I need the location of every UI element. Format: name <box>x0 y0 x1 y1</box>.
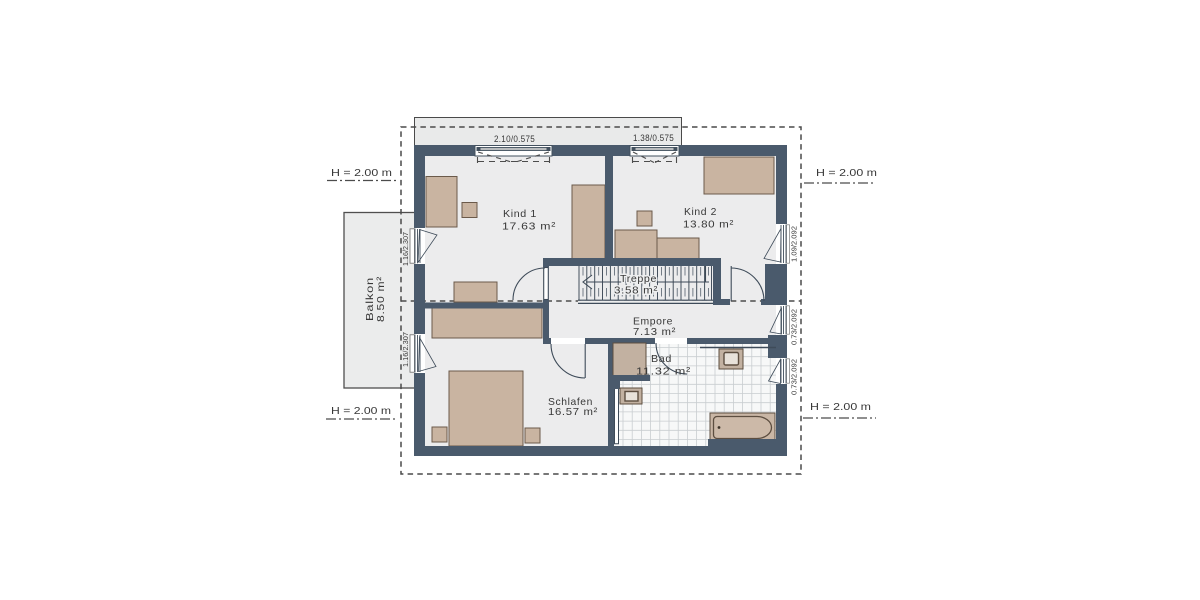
svg-text:H = 2.00 m: H = 2.00 m <box>810 402 871 413</box>
svg-text:H = 2.00 m: H = 2.00 m <box>816 168 877 179</box>
svg-text:1.38/0.575: 1.38/0.575 <box>633 133 674 143</box>
svg-text:1.09/2.092: 1.09/2.092 <box>790 226 799 262</box>
svg-text:17.63 m²: 17.63 m² <box>502 221 556 233</box>
svg-text:7.13 m²: 7.13 m² <box>633 326 676 338</box>
svg-text:Kind 1: Kind 1 <box>503 208 537 220</box>
svg-text:0.73/2.092: 0.73/2.092 <box>790 309 799 345</box>
svg-text:16.57 m²: 16.57 m² <box>548 406 598 418</box>
svg-text:Treppe: Treppe <box>620 273 657 285</box>
svg-text:1.16/2.307: 1.16/2.307 <box>401 332 410 367</box>
svg-text:2.10/0.575: 2.10/0.575 <box>494 134 535 144</box>
svg-text:13.80 m²: 13.80 m² <box>683 219 734 231</box>
svg-text:11.32 m²: 11.32 m² <box>636 366 691 378</box>
svg-text:1.16/2.307: 1.16/2.307 <box>401 232 410 266</box>
svg-text:H = 2.00 m: H = 2.00 m <box>331 168 392 179</box>
svg-text:Kind 2: Kind 2 <box>684 206 717 218</box>
svg-text:8.50 m²: 8.50 m² <box>375 276 387 322</box>
svg-text:0.73/2.092: 0.73/2.092 <box>790 359 799 395</box>
svg-text:3.58 m²: 3.58 m² <box>614 285 658 297</box>
svg-text:Bad: Bad <box>651 353 672 365</box>
svg-text:H = 2.00 m: H = 2.00 m <box>331 406 391 417</box>
